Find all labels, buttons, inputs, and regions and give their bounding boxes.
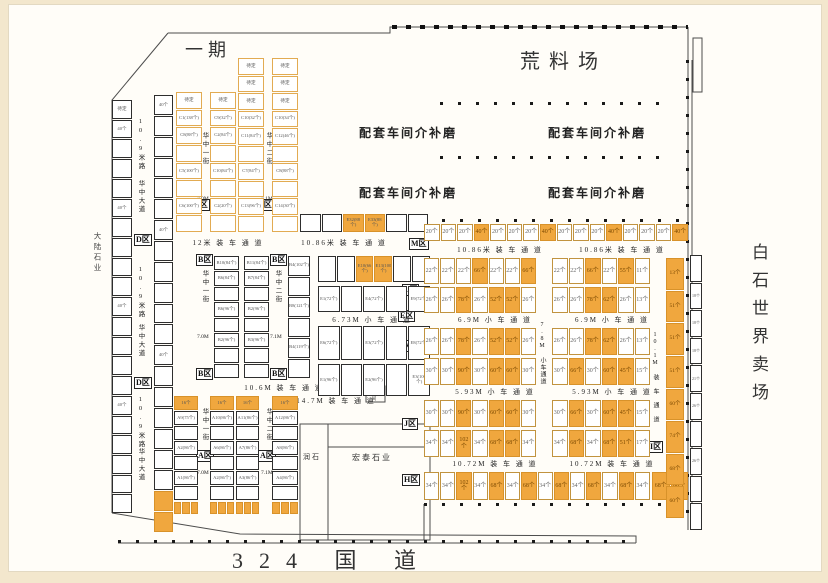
stall-cell: B11(84个)	[244, 256, 269, 270]
stall-cell	[154, 429, 173, 449]
stall-cell: B8(121个)	[288, 297, 310, 317]
stall-cell	[386, 286, 408, 312]
stall-cell	[214, 348, 239, 362]
stall-cell: 26个	[618, 287, 634, 313]
stall-cell: 68个	[619, 472, 634, 500]
stall-cell: 55个	[618, 258, 634, 284]
stall-cell: 68个	[554, 472, 569, 500]
stall-cell: C2(84个)	[210, 127, 236, 144]
stall-cell	[154, 178, 173, 198]
stall-cell: 40个	[154, 345, 173, 365]
stall-cell: C13(96个)	[238, 198, 264, 215]
stall-cell: 22个	[552, 258, 568, 284]
stall-cell	[112, 416, 132, 435]
stall-cell	[272, 216, 298, 233]
stall-cell	[154, 304, 173, 324]
stall-cell: 52个	[489, 287, 504, 313]
stall-cell: 30个	[585, 400, 601, 427]
stall-cell: 30个	[552, 358, 568, 385]
lane-593-2: 5.93M 小 车 通 道	[572, 387, 651, 397]
stall-cell: 90个	[456, 358, 471, 385]
stall-cell	[236, 426, 259, 440]
stall-cell: 17个	[635, 430, 651, 457]
stall-cell: 30个	[521, 358, 536, 385]
e-zone-row-0: E10(66个)E13(100个)	[318, 256, 430, 282]
stall-cell: 26个	[424, 287, 439, 313]
stall-cell	[214, 318, 239, 332]
stall-cell	[300, 214, 321, 232]
stall-cell: 26个	[690, 448, 702, 475]
lane-1072-1: 10.72M 装 车 通 道	[453, 459, 538, 469]
k-row-1-left: 26个26个78个26个52个52个26个	[424, 328, 536, 355]
stall-cell	[238, 216, 264, 233]
street-2-mid-width: 7.1M	[270, 334, 282, 340]
stall-cell	[112, 218, 132, 237]
stall-cell	[337, 256, 355, 282]
zone-label-h: H区	[402, 474, 420, 486]
stall-cell	[386, 326, 408, 360]
stall-cell	[690, 421, 702, 448]
l-row-2-left: 26个26个78个26个52个52个26个	[424, 287, 536, 313]
m-zone-row: 20个20个20个40个20个20个20个40个20个20个20个40个20个2…	[424, 224, 688, 241]
stall-cell: C7(84个)	[238, 163, 264, 180]
stall-cell	[174, 456, 198, 470]
e-zone-row-1: E1(72个)E4(72个)E9(72个)	[318, 286, 430, 312]
outer-boundary-strip: 18个18个18个21个26个26个	[690, 255, 702, 530]
stall-cell: 66个	[472, 258, 487, 284]
stall-cell	[112, 455, 132, 474]
right-boundary-dots	[686, 60, 689, 528]
stall-cell: C11(84个)	[238, 128, 264, 145]
i-zone-right-strip: 13个51个51个51个60个74个68个60个	[666, 258, 684, 518]
stall-cell: 20个	[523, 224, 539, 241]
stall-cell: 34个	[473, 472, 488, 500]
road-title: 324 国 道	[232, 543, 432, 575]
stall-cell: 66个	[521, 258, 536, 284]
street-2-bot-width: 7.1M	[261, 470, 273, 476]
stall-cell: 20个	[441, 224, 457, 241]
b-zone-col-3: B4(102个)B8(121个)B4(119个)	[288, 256, 310, 378]
stall-cell: 51个	[666, 356, 684, 388]
stall-cell: 26个	[569, 287, 585, 313]
stall-cell: 26个	[440, 287, 455, 313]
a-zone-col-4: 16个A12(86个)A8(86个)A4(86个)	[272, 396, 298, 500]
stall-cell: 30个	[424, 400, 439, 427]
stall-cell	[182, 502, 189, 514]
a-zone-col-2: 16个A10(86个)A6(86个)A2(86个)	[210, 396, 234, 500]
street-2-mid: 华中二街	[272, 270, 282, 304]
stall-cell: B6(84个)	[214, 271, 239, 285]
stall-cell: C1(138个)	[176, 110, 202, 127]
stall-cell: 20个	[557, 224, 573, 241]
stall-cell	[210, 486, 234, 500]
stall-cell	[112, 435, 132, 454]
stall-cell	[288, 318, 310, 338]
stall-cell: 15个	[635, 358, 651, 385]
h-zone-row: 34个34个102个34个68个34个68个34个68个34个68个34个68个…	[424, 472, 650, 500]
stall-cell: A6(86个)	[210, 441, 234, 455]
stall-cell	[244, 502, 251, 514]
stall-cell: 22个	[602, 258, 618, 284]
stall-cell: 78个	[456, 287, 471, 313]
stall-cell: 45个	[618, 358, 634, 385]
stall-cell: 30个	[552, 400, 568, 427]
yard-top-boundary	[392, 25, 688, 29]
stall-cell	[288, 359, 310, 379]
stall-cell: 62个	[602, 287, 618, 313]
stall-cell: C9(32个)	[210, 110, 236, 127]
stall-cell	[218, 502, 225, 514]
stall-cell: E3(72个)	[363, 326, 385, 360]
stall-cell: 16个	[272, 396, 298, 410]
stall-cell: 102个	[456, 430, 471, 457]
stall-cell: 60个	[666, 486, 684, 518]
stall-cell: 26个	[552, 328, 568, 355]
stall-cell: 26个	[618, 328, 634, 355]
zone-label-b-2: B区	[270, 254, 287, 266]
pillar-row-h	[424, 503, 688, 506]
stall-cell: 待定	[238, 93, 264, 110]
stall-cell	[154, 262, 173, 282]
zone-label-d-1: D区	[134, 234, 152, 246]
stall-cell: 20个	[590, 224, 606, 241]
stall-cell: 34个	[585, 430, 601, 457]
stall-cell: 78个	[585, 287, 601, 313]
lane-101-vertical: 10.1M 装 车 通 道	[651, 332, 660, 423]
stall-cell	[176, 145, 202, 162]
a-foot-minis-3	[236, 502, 259, 514]
stall-cell	[244, 287, 269, 301]
stall-cell: 34个	[570, 472, 585, 500]
stall-cell: 22个	[505, 258, 520, 284]
stall-cell: 20个	[573, 224, 589, 241]
stall-cell	[272, 456, 298, 470]
stall-cell: 52个	[505, 328, 520, 355]
stall-cell: 26个	[440, 328, 455, 355]
stall-cell	[341, 326, 363, 360]
stall-cell	[154, 450, 173, 470]
zone-label-j: J区	[402, 418, 418, 430]
stall-cell: 40个	[672, 224, 688, 241]
k-row-2-left: 30个30个90个30个60个60个30个	[424, 358, 536, 385]
stall-cell: E2(96个)	[363, 364, 385, 396]
stall-cell: 22个	[569, 258, 585, 284]
workshop-label-1: 配套车间介补磨	[359, 124, 457, 141]
stall-cell: 68个	[586, 472, 601, 500]
stall-cell: 68个	[569, 430, 585, 457]
stall-cell	[214, 287, 239, 301]
lane-1072-2: 10.72M 装 车 通 道	[570, 459, 655, 469]
stall-cell: 34个	[538, 472, 553, 500]
stall-cell	[272, 181, 298, 198]
stall-cell	[236, 456, 259, 470]
street-avenue-2: 华中大道	[135, 324, 145, 358]
stall-cell: A9(75个)	[174, 411, 198, 425]
stall-cell: 16个	[174, 396, 198, 410]
stall-cell: 34个	[505, 472, 520, 500]
phase-title: 一期	[185, 36, 231, 62]
stall-cell: 68个	[666, 454, 684, 486]
zone-label-b-3: B区	[196, 368, 213, 380]
stall-cell: E1(72个)	[318, 286, 340, 312]
a-foot-minis-4	[272, 502, 298, 514]
stall-cell: 待定	[176, 92, 202, 109]
stall-cell: C2(20个)	[210, 198, 236, 215]
e-top-row: E32(88个)E33(88个)	[300, 214, 428, 232]
stall-cell: B2(96个)	[244, 302, 269, 316]
stall-cell: E13(100个)	[374, 256, 392, 282]
stall-cell: 26个	[569, 328, 585, 355]
street-avenue-3: 华中大道	[135, 448, 145, 482]
stall-cell: 30个	[472, 400, 487, 427]
stall-cell: 待定	[272, 58, 298, 75]
stall-cell: 60个	[602, 400, 618, 427]
stall-cell: 待定	[272, 76, 298, 93]
stall-cell	[386, 214, 407, 232]
stall-cell: 45个	[618, 400, 634, 427]
stall-cell: 30个	[440, 358, 455, 385]
stall-cell: E1(96个)	[318, 364, 340, 396]
stall-cell: 68个	[521, 472, 536, 500]
stall-cell	[244, 364, 269, 378]
stall-cell: 40个	[112, 297, 132, 316]
stall-cell: 26个	[690, 393, 702, 420]
stall-cell: 40个	[474, 224, 490, 241]
workshop-label-4: 配套车间介补磨	[548, 184, 646, 201]
zone-label-d-2: D区	[134, 377, 152, 389]
a-foot-minis-2	[210, 502, 234, 514]
stall-cell	[227, 502, 234, 514]
stall-cell	[154, 199, 173, 219]
street-1-mid-width: 7.0M	[197, 334, 209, 340]
stall-cell: 30个	[521, 400, 536, 427]
stall-cell: 22个	[456, 258, 471, 284]
stall-cell	[210, 502, 217, 514]
stall-cell: A12(86个)	[272, 411, 298, 425]
street-109-3: 10.9米路	[135, 396, 145, 449]
stall-cell: 13个	[635, 328, 651, 355]
stall-cell: 20个	[424, 224, 440, 241]
stall-cell: 102个	[456, 472, 471, 500]
stall-cell: 15个	[635, 400, 651, 427]
stall-cell: C10(32个)	[238, 111, 264, 128]
stall-cell	[176, 180, 202, 197]
stall-cell: 26个	[472, 328, 487, 355]
stall-cell	[191, 502, 198, 514]
stall-cell	[112, 139, 132, 158]
stall-cell: 16个	[236, 396, 259, 410]
street-1-mid: 华中一街	[199, 270, 209, 304]
stall-cell: A2(86个)	[174, 441, 198, 455]
stall-cell	[341, 286, 363, 312]
second-strip-column: 40个40个40个	[154, 95, 173, 532]
stall-cell: 34个	[472, 430, 487, 457]
l-row-1-left: 22个22个22个66个22个22个66个	[424, 258, 536, 284]
stall-cell	[210, 180, 236, 197]
stall-cell: 待定	[272, 93, 298, 110]
stall-cell: 20个	[507, 224, 523, 241]
stall-cell	[154, 158, 173, 178]
stall-cell: 51个	[666, 323, 684, 355]
lane-593-1: 5.93M 小 车 通 道	[455, 387, 534, 397]
stall-cell: 22个	[440, 258, 455, 284]
stall-cell: C8(88个)	[176, 127, 202, 144]
stall-cell	[236, 502, 243, 514]
stall-cell	[238, 146, 264, 163]
stall-cell: 30个	[424, 358, 439, 385]
stall-cell	[210, 145, 236, 162]
stall-cell: 34个	[440, 430, 455, 457]
runshi-label: 润石	[303, 452, 321, 462]
stall-cell: 26个	[424, 328, 439, 355]
stall-cell	[112, 159, 132, 178]
stall-cell: 30个	[472, 358, 487, 385]
stall-cell: 13个	[635, 287, 651, 313]
stall-cell	[210, 456, 234, 470]
lane-69-1: 6.9M 小 车 通 道	[458, 315, 532, 325]
stall-cell: B2(96个)	[214, 333, 239, 347]
street-109-1: 10.9米路	[135, 118, 145, 171]
stall-cell	[154, 512, 173, 532]
stall-cell: E4(72个)	[363, 286, 385, 312]
stall-cell: C8(88个)	[272, 163, 298, 180]
e-zone-row-2: E6(72个)E3(72个)E8(72个)	[318, 326, 430, 360]
stall-cell: 34个	[424, 430, 439, 457]
stall-cell	[154, 324, 173, 344]
stall-cell: A3(86个)	[236, 471, 259, 485]
j-row-2-right: 34个68个34个68个51个17个	[552, 430, 650, 457]
stall-cell: 40个	[606, 224, 622, 241]
stall-cell: 34个	[635, 472, 650, 500]
stall-cell: 18个	[690, 310, 702, 337]
stall-cell	[690, 255, 702, 282]
stall-cell: 26个	[521, 328, 536, 355]
stall-cell: C10(34个)	[272, 111, 298, 128]
pillar-row-yard-2	[440, 156, 665, 159]
stall-cell: B4(102个)	[288, 256, 310, 276]
stall-cell: 52个	[489, 328, 504, 355]
j-row-1-left: 30个30个90个30个60个60个30个	[424, 400, 536, 427]
stall-cell	[272, 502, 280, 514]
stall-cell	[112, 277, 132, 296]
b-zone-col-2: B11(84个)B7(84个)B2(96个)B3(96个)	[244, 256, 269, 378]
stall-cell: E10(66个)	[356, 256, 374, 282]
stall-cell	[174, 426, 198, 440]
l-row-1-right: 22个22个66个22个55个11个	[552, 258, 650, 284]
c-zone-col-4: 待定待定待定C10(34个)C12(46个)C8(88个)C14(30个)	[272, 58, 298, 232]
stall-cell: 待定	[112, 100, 132, 119]
stall-cell	[154, 408, 173, 428]
j-row-2-left: 34个34个102个34个68个68个34个	[424, 430, 536, 457]
c-zone-col-3: 待定待定待定C10(32个)C11(84个)C7(84个)C13(96个)	[238, 58, 264, 232]
stall-cell	[318, 256, 336, 282]
pillar-row-yard-1	[440, 102, 665, 105]
stall-cell	[154, 470, 173, 490]
stall-cell: A10(86个)	[210, 411, 234, 425]
stall-cell: 20个	[457, 224, 473, 241]
stall-cell	[214, 364, 239, 378]
lane-12m: 12米 装 车 通 道	[193, 238, 264, 248]
d-zone-left-strip: 待定40个40个40个40个	[112, 100, 132, 513]
stall-cell: C12(46个)	[272, 128, 298, 145]
zone-label-b-1: B区	[196, 254, 213, 266]
stall-cell: 74个	[666, 421, 684, 453]
stall-cell: E32(88个)	[343, 214, 364, 232]
plan-page: { "titles": { "phase": "一期", "yard": "荒料…	[0, 0, 828, 583]
stall-cell	[112, 475, 132, 494]
zone-label-b-4: B区	[270, 368, 287, 380]
c-zone-col-2: 待定C9(32个)C2(84个)C10(84个)C2(20个)	[210, 92, 236, 232]
stall-cell	[244, 318, 269, 332]
stall-cell: 68个	[602, 430, 618, 457]
stall-cell	[288, 277, 310, 297]
stall-cell	[174, 502, 181, 514]
street-avenue-1: 华中大道	[135, 180, 145, 214]
stall-cell: 13个	[666, 258, 684, 290]
stall-cell	[154, 387, 173, 407]
stall-cell	[690, 503, 702, 530]
stall-cell: 34个	[440, 472, 455, 500]
b-zone-col-1: B10(84个)B6(84个)B6(96个)B2(96个)	[214, 256, 239, 378]
market-title: 白石世界卖场	[746, 243, 771, 411]
stall-cell	[112, 337, 132, 356]
street-109-2: 10.9米路	[135, 266, 145, 319]
hongtai-label: 宏泰石业	[352, 452, 392, 463]
stall-cell: 68个	[489, 472, 504, 500]
stall-cell	[272, 486, 298, 500]
stall-cell: 34个	[521, 430, 536, 457]
stall-cell: B7(84个)	[244, 271, 269, 285]
stall-cell: E6(72个)	[318, 326, 340, 360]
stall-cell: A11(86个)	[236, 411, 259, 425]
stall-cell	[690, 476, 702, 503]
stall-cell	[386, 364, 408, 396]
stall-cell	[154, 491, 173, 511]
stall-cell: 66个	[569, 400, 585, 427]
stall-cell: 20个	[623, 224, 639, 241]
stall-cell: 40个	[112, 199, 132, 218]
stall-cell: B6(96个)	[214, 302, 239, 316]
stall-cell: 51个	[666, 291, 684, 323]
stall-cell: 18个	[690, 283, 702, 310]
pillar-row-m	[424, 219, 688, 222]
stall-cell	[174, 486, 198, 500]
stall-cell	[112, 317, 132, 336]
stall-cell: 20个	[490, 224, 506, 241]
stall-cell: 40个	[154, 95, 173, 115]
l-row-2-right: 26个26个78个62个26个13个	[552, 287, 650, 313]
stall-cell	[154, 116, 173, 136]
stall-cell: 60个	[602, 358, 618, 385]
stall-cell	[154, 366, 173, 386]
workshop-label-2: 配套车间介补磨	[548, 124, 646, 141]
stall-cell	[236, 486, 259, 500]
stall-cell: 40个	[112, 396, 132, 415]
stall-cell: 66个	[569, 358, 585, 385]
stall-cell: B4(119个)	[288, 338, 310, 358]
stall-cell	[238, 181, 264, 198]
stall-cell	[272, 146, 298, 163]
stall-cell	[112, 494, 132, 513]
lane-1086-r1: 10.86米 装 车 通 道	[457, 245, 543, 255]
stall-cell: 52个	[505, 287, 520, 313]
e-zone-row-3: E1(96个)E2(96个)E3(100个)	[318, 364, 430, 396]
stall-cell: C6(100个)	[176, 198, 202, 215]
stall-cell: 20个	[656, 224, 672, 241]
stall-cell: 34个	[552, 430, 568, 457]
stall-cell: A8(86个)	[272, 441, 298, 455]
stall-cell: C14(30个)	[272, 198, 298, 215]
